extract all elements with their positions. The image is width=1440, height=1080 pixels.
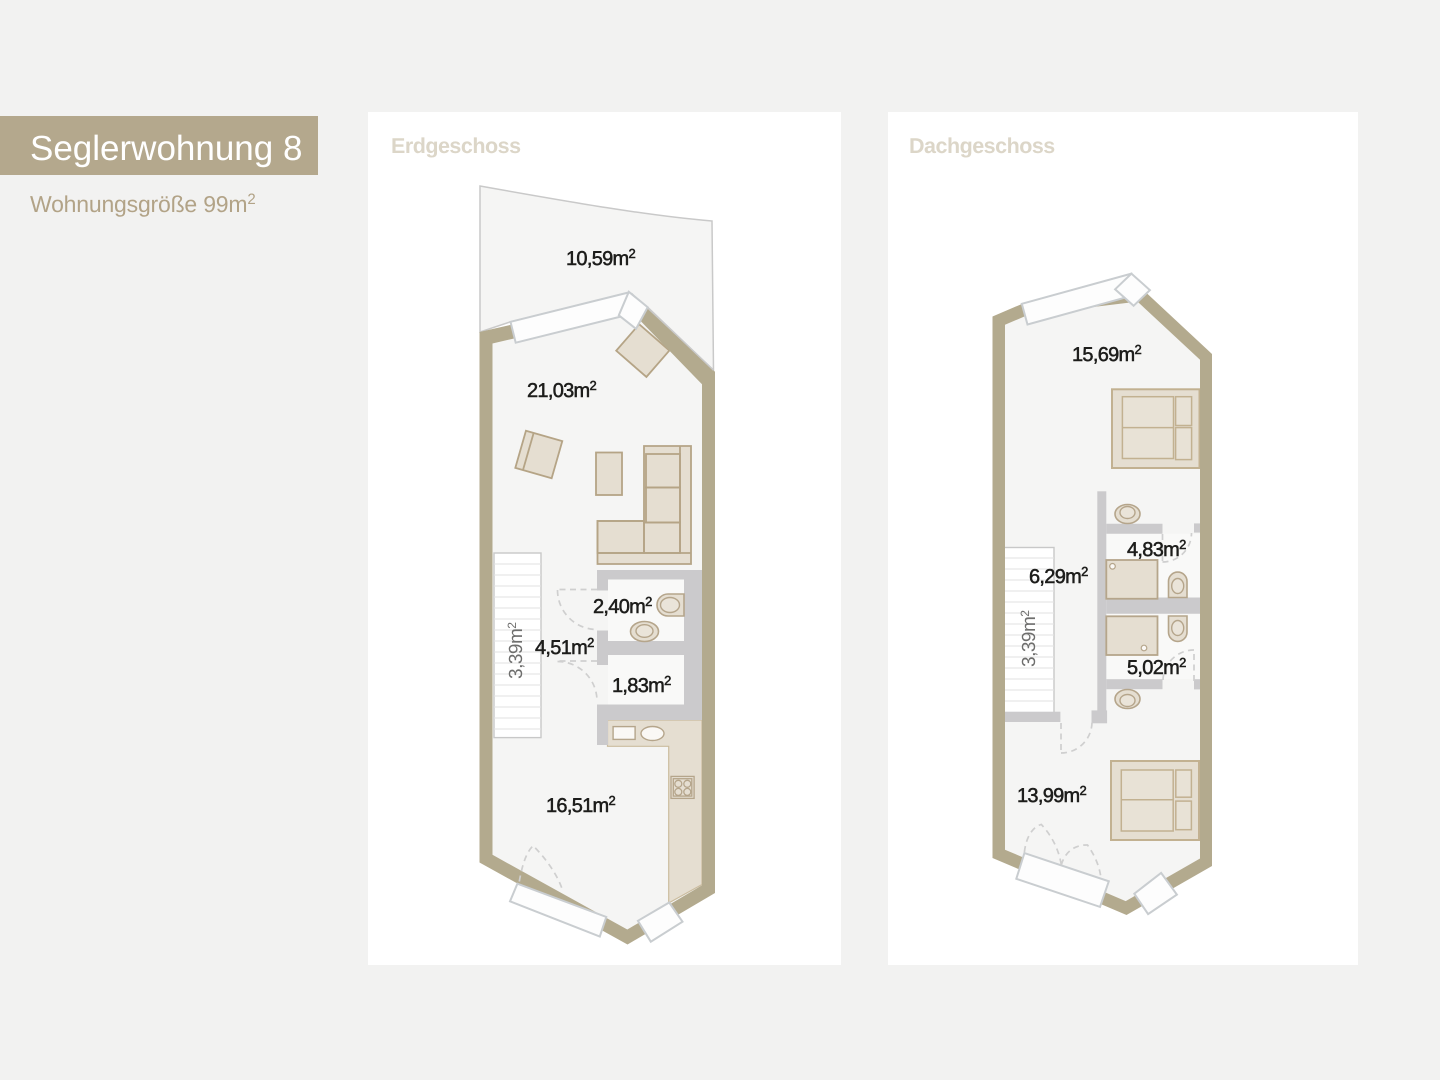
svg-text:5,02m2: 5,02m2 [1127, 655, 1186, 679]
svg-text:6,29m2: 6,29m2 [1029, 564, 1088, 588]
svg-text:2,40m2: 2,40m2 [593, 594, 652, 618]
svg-text:21,03m2: 21,03m2 [527, 378, 597, 402]
svg-text:3,39m2: 3,39m2 [1018, 610, 1040, 667]
svg-text:10,59m2: 10,59m2 [566, 246, 636, 270]
svg-text:15,69m2: 15,69m2 [1072, 342, 1142, 366]
svg-text:1,83m2: 1,83m2 [612, 673, 671, 697]
svg-text:Dachgeschoss: Dachgeschoss [909, 134, 1055, 158]
svg-text:16,51m2: 16,51m2 [546, 793, 616, 817]
svg-text:4,51m2: 4,51m2 [535, 635, 594, 659]
svg-text:4,83m2: 4,83m2 [1127, 537, 1186, 561]
svg-text:Wohnungsgröße 99m2: Wohnungsgröße 99m2 [30, 191, 256, 217]
svg-text:3,39m2: 3,39m2 [505, 622, 527, 679]
svg-text:13,99m2: 13,99m2 [1017, 783, 1087, 807]
svg-text:Erdgeschoss: Erdgeschoss [391, 134, 521, 158]
svg-text:Seglerwohnung 8: Seglerwohnung 8 [30, 129, 302, 168]
